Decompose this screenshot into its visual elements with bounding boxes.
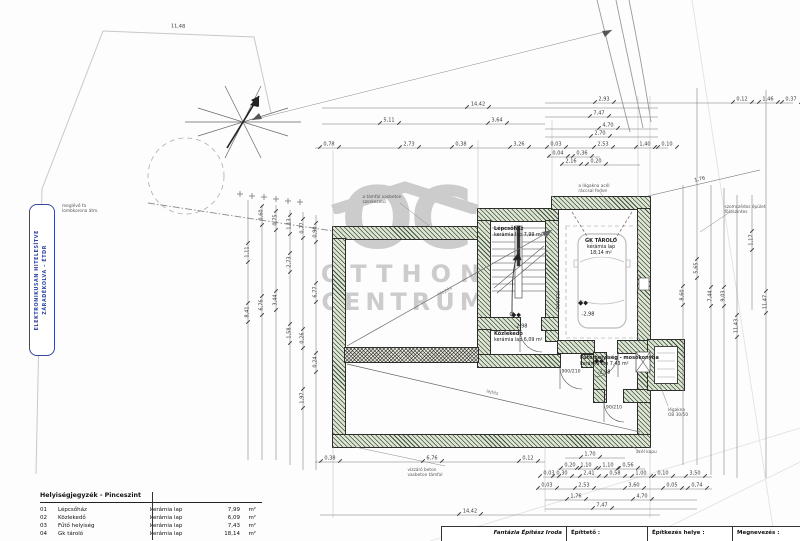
dimension-label: 1,40 <box>639 143 650 148</box>
dimension-label: 1,13 <box>288 218 293 229</box>
dimension-label: 2,70 <box>594 132 605 137</box>
dimension-label: 6,76 <box>260 299 265 310</box>
dimension-label: 1,58 <box>288 327 293 338</box>
dimension-label: 2,41 <box>583 472 594 477</box>
room-schedule-rows: 01Lépcsőházkerámia lap7,99m²02Közlekedők… <box>40 507 262 539</box>
dimension-label: 0,12 <box>736 98 747 103</box>
dimension-label: 0,60 <box>260 209 265 220</box>
dimension-label: 11,47 <box>764 295 769 309</box>
room-schedule-cell: Fűtő helyiség <box>58 523 150 531</box>
room-schedule-cell: m² <box>240 507 256 515</box>
room-schedule-cell: 6,09 <box>214 515 240 523</box>
dimension-label: 0,03 <box>541 484 552 489</box>
room-schedule-cell: 7,99 <box>214 507 240 515</box>
dimension-label: 0,58 <box>609 472 620 477</box>
room-schedule-cell: m² <box>240 523 256 531</box>
dimension-label: 0,20 <box>590 160 601 165</box>
dimension-label: 1,00 <box>635 472 646 477</box>
room-schedule-cell: kerámia lap <box>150 523 214 531</box>
level-value: -2,98 <box>598 370 611 376</box>
dimension-label: 1,46 <box>762 98 773 103</box>
name-label: Megnevezés : <box>733 527 800 541</box>
annotation-note: meglévő falombkorona átm. <box>62 204 99 215</box>
dimension-label: 3,50 <box>689 472 700 477</box>
annotation-note: szomszédos épületföldszintes <box>724 205 765 216</box>
level-value: -2,98 <box>582 312 595 318</box>
dimension-label: 14,42 <box>471 103 485 108</box>
dimension-label: 3,44 <box>274 294 279 305</box>
dimension-label: 2,16 <box>565 160 576 165</box>
room-schedule-cell: m² <box>240 515 256 523</box>
dimension-label: 3,26 <box>513 143 524 148</box>
room-label: Közlekedőkerámia lap 6,09 m² <box>494 331 543 344</box>
dimension-label: 0,12 <box>522 457 533 462</box>
architect-office-name: Fantázia Építész Iroda <box>442 527 567 541</box>
annotation-note: légaknaOB 30/50 <box>668 408 688 419</box>
dimension-label: 0,10 <box>661 143 672 148</box>
dimension-label: 2,53 <box>597 143 608 148</box>
room-schedule-row: 02Közlekedőkerámia lap6,09m² <box>40 515 262 523</box>
room-schedule-divider <box>152 492 153 540</box>
dimension-label: 0,24 <box>314 356 319 367</box>
annotation-note: vízzáró betonvasbeton támfal <box>407 468 442 479</box>
room-schedule-cell: m² <box>240 531 256 539</box>
room-schedule-cell: 03 <box>40 523 58 531</box>
room-schedule-cell: 04 <box>40 531 58 539</box>
dimension-label: 0,75 <box>274 214 279 225</box>
dimension-label: 0,77 <box>301 222 306 233</box>
dimension-label: 0,10 <box>657 472 668 477</box>
room-schedule-cell: 7,43 <box>214 523 240 531</box>
annotation-note: a légakna acélráccsal fedve <box>578 184 609 195</box>
dimension-label: 7,47 <box>593 112 604 117</box>
door-size-label: 900/210 <box>561 371 580 376</box>
room-label: Lépcsőházkerámia lap 7,99 m² <box>494 226 543 239</box>
dimension-label: 2,93 <box>598 98 609 103</box>
dimension-label: 0,05 <box>666 484 677 489</box>
dimension-label: 11,48 <box>171 24 185 29</box>
room-schedule: Helyiségjegyzék - Pinceszint 01Lépcsőház… <box>40 492 262 539</box>
level-marker: -2,98 <box>513 305 528 330</box>
dimension-label: 3,64 <box>491 119 502 124</box>
dimension-label: 4,70 <box>602 124 613 129</box>
dimension-label: 0,38 <box>324 457 335 462</box>
stamp-line1: ELEKTRONIKUSAN HITELESÍTVE <box>34 230 42 330</box>
dimension-label: 0,03 <box>550 143 561 148</box>
dimension-label: 5,65 <box>695 262 700 273</box>
dimension-label: 0,36 <box>576 152 587 157</box>
dimension-label: 0,90 <box>314 226 319 237</box>
dimension-label: 5,11 <box>383 119 394 124</box>
stairs <box>492 226 547 316</box>
floor-plan-sheet: OC OTTHON CENTRUM <box>0 0 800 541</box>
room-schedule-cell: 18,14 <box>214 531 240 539</box>
dimension-label: 1,10 <box>580 464 591 469</box>
dimension-label: 7,47 <box>596 504 607 509</box>
etdr-authentication-stamp: ELEKTRONIKUSAN HITELESÍTVE ZÁRADÉKOLVA –… <box>29 204 55 356</box>
room-schedule-cell: Gk tároló <box>58 531 150 539</box>
dimension-label: 8,41 <box>246 306 251 317</box>
room-schedule-row: 01Lépcsőházkerámia lap7,99m² <box>40 507 262 515</box>
room-schedule-cell: kerámia lap <box>150 507 214 515</box>
level-cross-icon <box>578 298 588 308</box>
dimension-label: 1,97 <box>301 392 306 403</box>
level-value: -2,98 <box>515 324 528 330</box>
room-schedule-cell: Lépcsőház <box>58 507 150 515</box>
stamp-line2: ZÁRADÉKOLVA – ÉTDR <box>42 245 50 315</box>
dimension-label: 1,17 <box>750 234 755 245</box>
title-block: Fantázia Építész Iroda Építtető : Építke… <box>441 526 800 541</box>
dimension-label: 0,26 <box>301 332 306 343</box>
dimension-label: 2,73 <box>403 143 414 148</box>
dimension-label: 0,04 <box>552 152 563 157</box>
room-schedule-cell: kerámia lap <box>150 515 214 523</box>
dimension-label: 2,73 <box>288 256 293 267</box>
level-marker: -2,98 <box>580 293 595 318</box>
dimension-label: 0,78 <box>323 143 334 148</box>
dimension-label: 0,30 <box>556 472 567 477</box>
dimension-label: 4,70 <box>636 495 647 500</box>
room-schedule-cell: 02 <box>40 515 58 523</box>
dimension-label: 0,37 <box>785 98 796 103</box>
builder-label: Építtető : <box>567 527 648 541</box>
dimension-label: 9,03 <box>722 290 727 301</box>
dimension-label: 6,76 <box>426 457 437 462</box>
site-label: Építkezés helye : <box>648 527 733 541</box>
dimension-label: 7,44 <box>709 290 714 301</box>
dimension-label: 0,74 <box>691 484 702 489</box>
room-schedule-row: 03Fűtő helyiségkerámia lap7,43m² <box>40 523 262 531</box>
dimension-label: 1,10 <box>602 464 613 469</box>
dimension-label: 8,60 <box>681 289 686 300</box>
dimension-label: 3,60 <box>628 484 639 489</box>
door-size-label: 90/210 <box>606 407 622 412</box>
room-schedule-cell: kerámia lap <box>150 531 214 539</box>
room-label: GK TÁROLÓkerámia lap18,14 m² <box>585 238 617 257</box>
level-cross-icon <box>511 310 521 320</box>
dimension-label: 0,56 <box>622 464 633 469</box>
dimension-label: 2,53 <box>578 484 589 489</box>
annotation-note: a támfal vasbetonszerkezetű <box>362 195 401 206</box>
dimension-label: 1,76 <box>570 495 581 500</box>
room-label: Fűtő helyiség - mosókonyhakerámia lap 7,… <box>580 355 659 368</box>
dimension-label: 1,11 <box>246 246 251 257</box>
dimension-label: 0,20 <box>564 464 575 469</box>
dimension-label: 11,43 <box>735 319 740 333</box>
room-schedule-row: 04Gk tárolókerámia lap18,14m² <box>40 531 262 539</box>
dimension-label: 14,42 <box>463 510 477 515</box>
door-size-label: 900/210 <box>558 290 563 309</box>
plan-linework <box>0 0 800 541</box>
annotation-note: acél kapu <box>636 450 657 455</box>
room-schedule-cell: 01 <box>40 507 58 515</box>
room-schedule-title: Helyiségjegyzék - Pinceszint <box>40 492 262 503</box>
dimension-label: 1,70 <box>584 453 595 458</box>
dimension-label: 6,77 <box>314 286 319 297</box>
dimension-label: 0,38 <box>455 143 466 148</box>
room-schedule-cell: Közlekedő <box>58 515 150 523</box>
